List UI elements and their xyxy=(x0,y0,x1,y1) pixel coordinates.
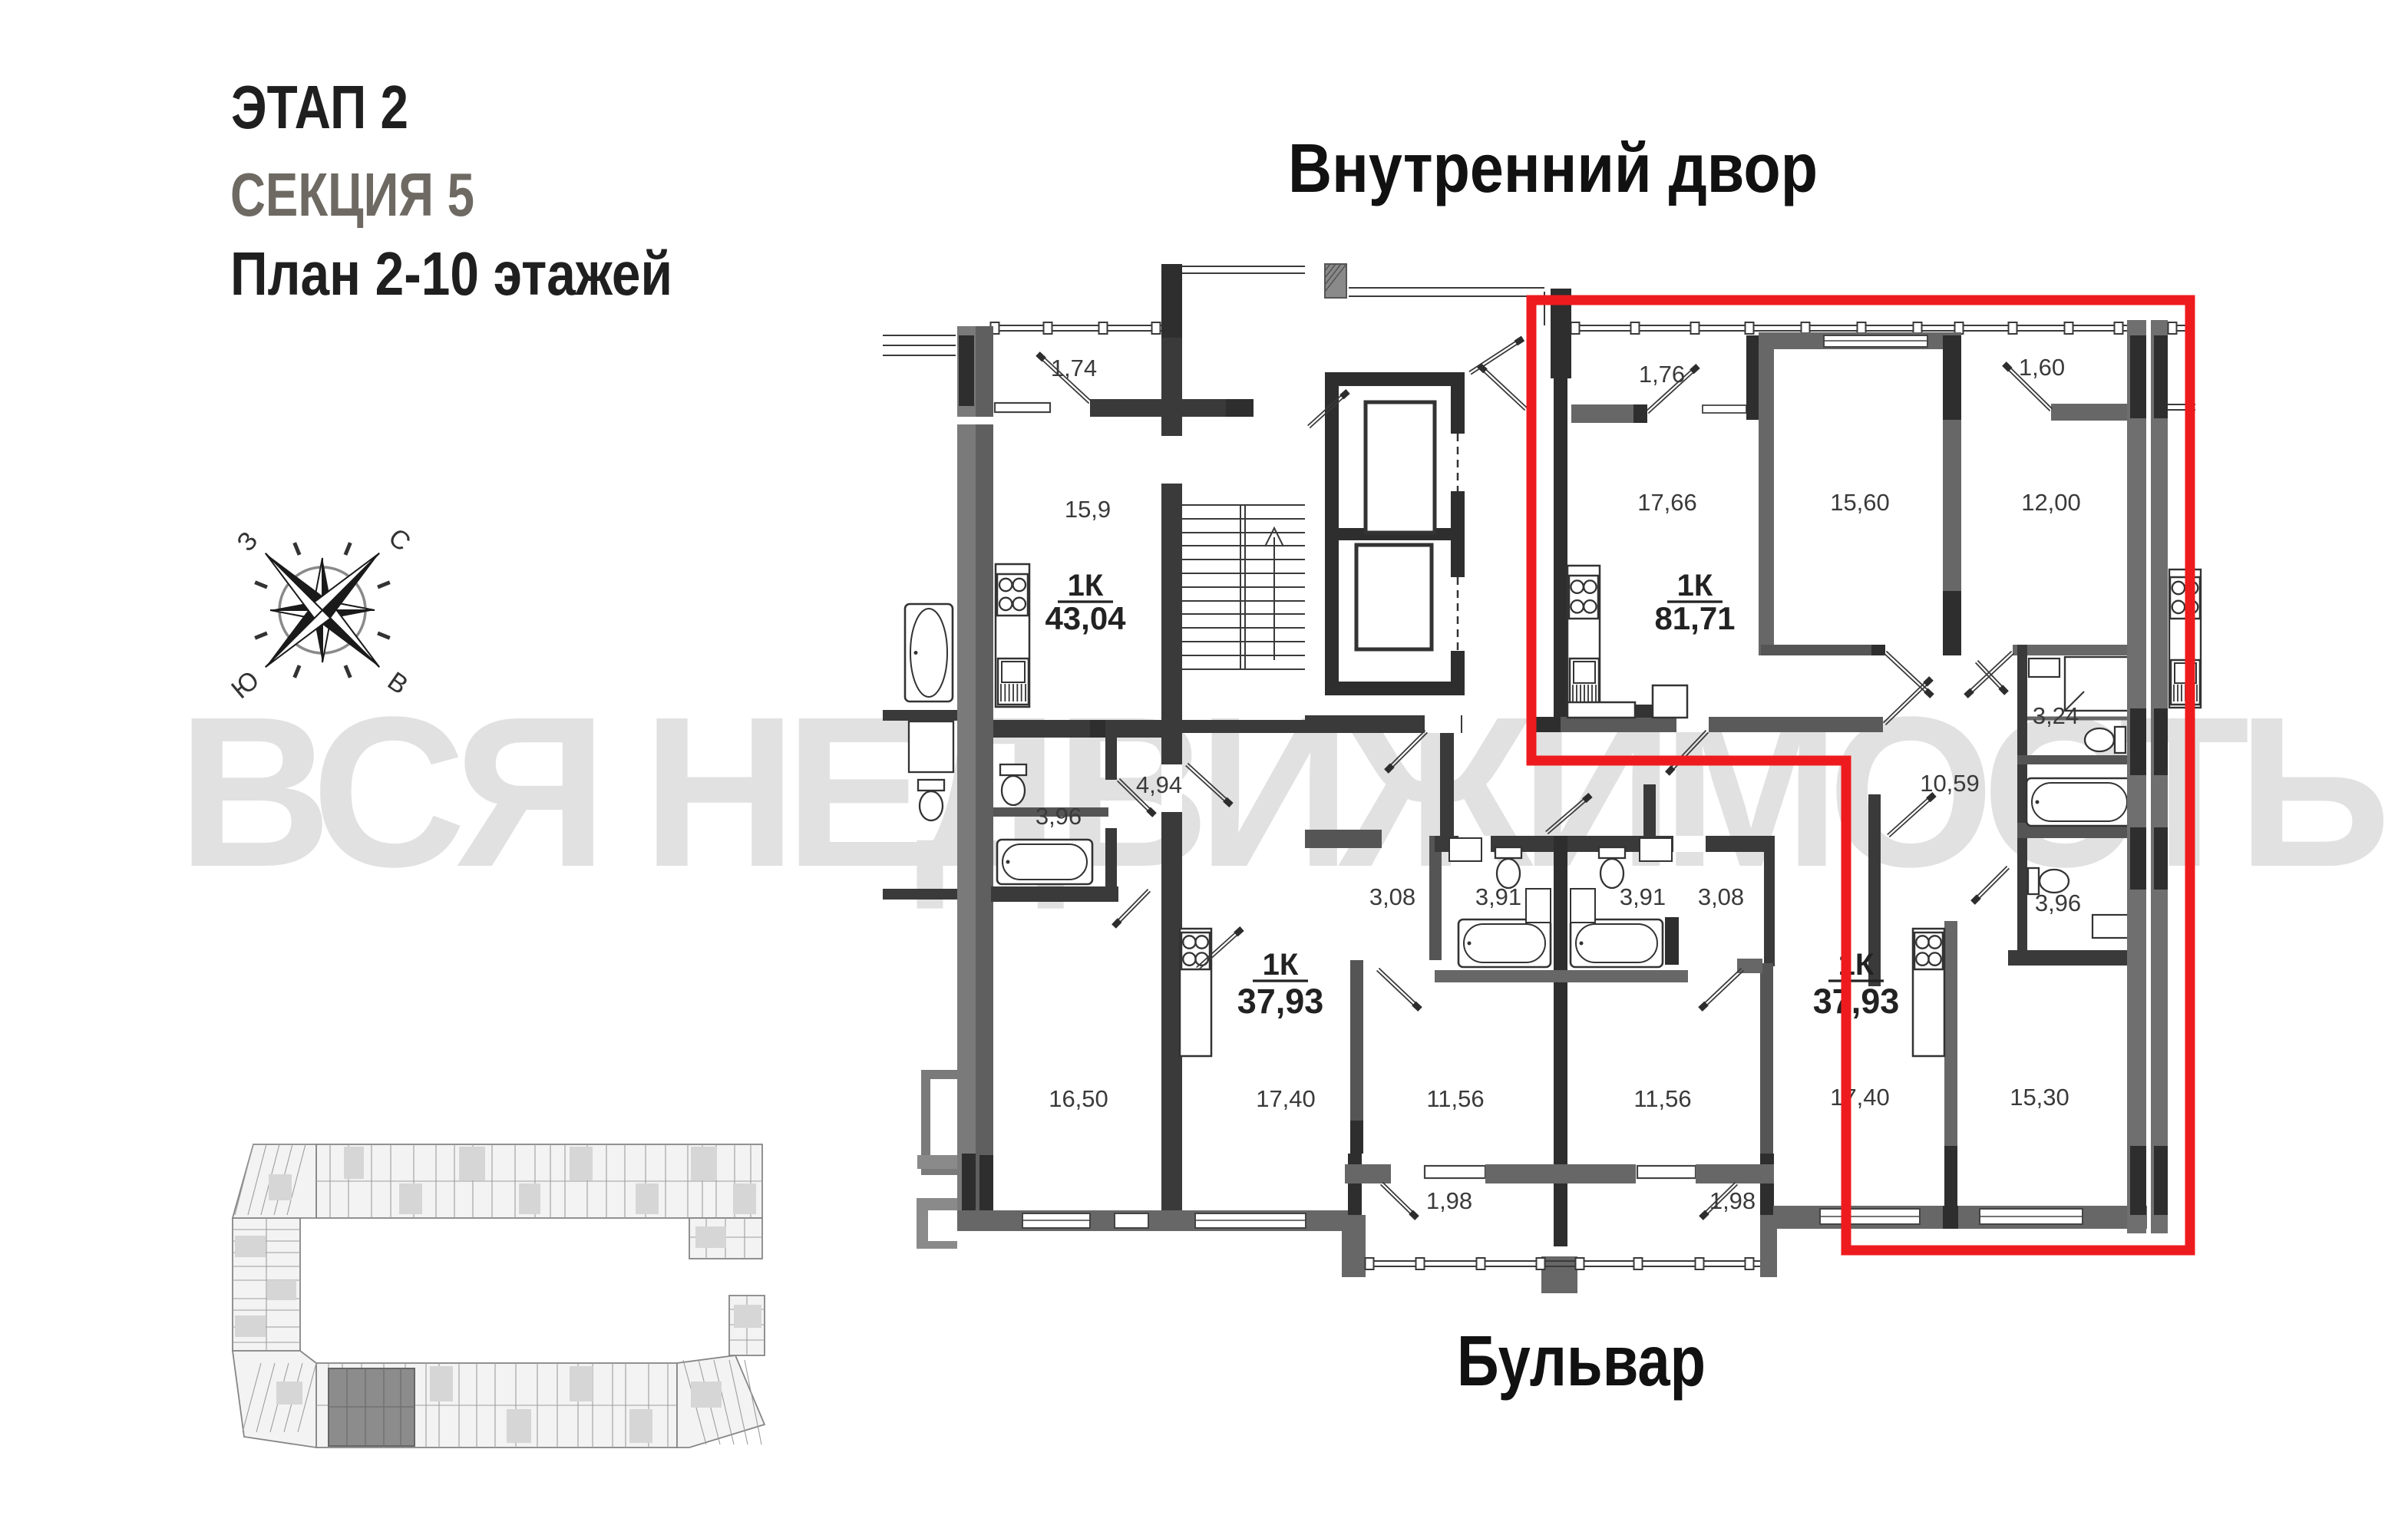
svg-text:Бульвар: Бульвар xyxy=(1457,1321,1706,1401)
svg-text:1,74: 1,74 xyxy=(1051,355,1097,381)
svg-text:3,96: 3,96 xyxy=(2035,890,2081,916)
svg-text:10,59: 10,59 xyxy=(1920,770,1980,797)
svg-text:1К: 1К xyxy=(1677,569,1713,602)
svg-text:1,98: 1,98 xyxy=(1426,1187,1472,1214)
svg-text:81,71: 81,71 xyxy=(1654,600,1735,636)
svg-text:37,93: 37,93 xyxy=(1237,982,1324,1021)
svg-text:11,56: 11,56 xyxy=(1426,1085,1484,1112)
svg-text:4,94: 4,94 xyxy=(1136,771,1182,798)
svg-text:15,30: 15,30 xyxy=(2010,1084,2069,1111)
svg-text:12,00: 12,00 xyxy=(2021,489,2081,516)
svg-text:15,60: 15,60 xyxy=(1830,489,1890,516)
svg-text:1,76: 1,76 xyxy=(1639,361,1685,388)
svg-text:43,04: 43,04 xyxy=(1045,600,1126,636)
svg-text:План 2-10 этажей: План 2-10 этажей xyxy=(230,239,672,308)
svg-text:3,91: 3,91 xyxy=(1475,883,1521,910)
svg-text:17,40: 17,40 xyxy=(1256,1085,1316,1112)
svg-text:3,24: 3,24 xyxy=(2033,702,2079,729)
svg-text:Внутренний двор: Внутренний двор xyxy=(1288,130,1818,207)
svg-text:17,40: 17,40 xyxy=(1830,1084,1890,1111)
svg-text:3,08: 3,08 xyxy=(1698,883,1744,910)
svg-text:ЭТАП 2: ЭТАП 2 xyxy=(231,73,408,141)
svg-text:1К: 1К xyxy=(1263,948,1299,982)
svg-text:1К: 1К xyxy=(1068,569,1104,602)
svg-text:11,56: 11,56 xyxy=(1633,1085,1691,1112)
svg-text:3,91: 3,91 xyxy=(1620,883,1666,910)
svg-text:37,93: 37,93 xyxy=(1813,982,1900,1021)
svg-text:16,50: 16,50 xyxy=(1049,1085,1108,1112)
svg-text:15,9: 15,9 xyxy=(1065,496,1111,523)
svg-text:1,60: 1,60 xyxy=(2019,354,2065,381)
svg-text:3,96: 3,96 xyxy=(1036,803,1082,830)
svg-text:3,08: 3,08 xyxy=(1369,883,1415,910)
svg-text:1,98: 1,98 xyxy=(1709,1187,1756,1214)
svg-text:17,66: 17,66 xyxy=(1637,489,1697,516)
svg-text:СЕКЦИЯ 5: СЕКЦИЯ 5 xyxy=(230,160,474,229)
